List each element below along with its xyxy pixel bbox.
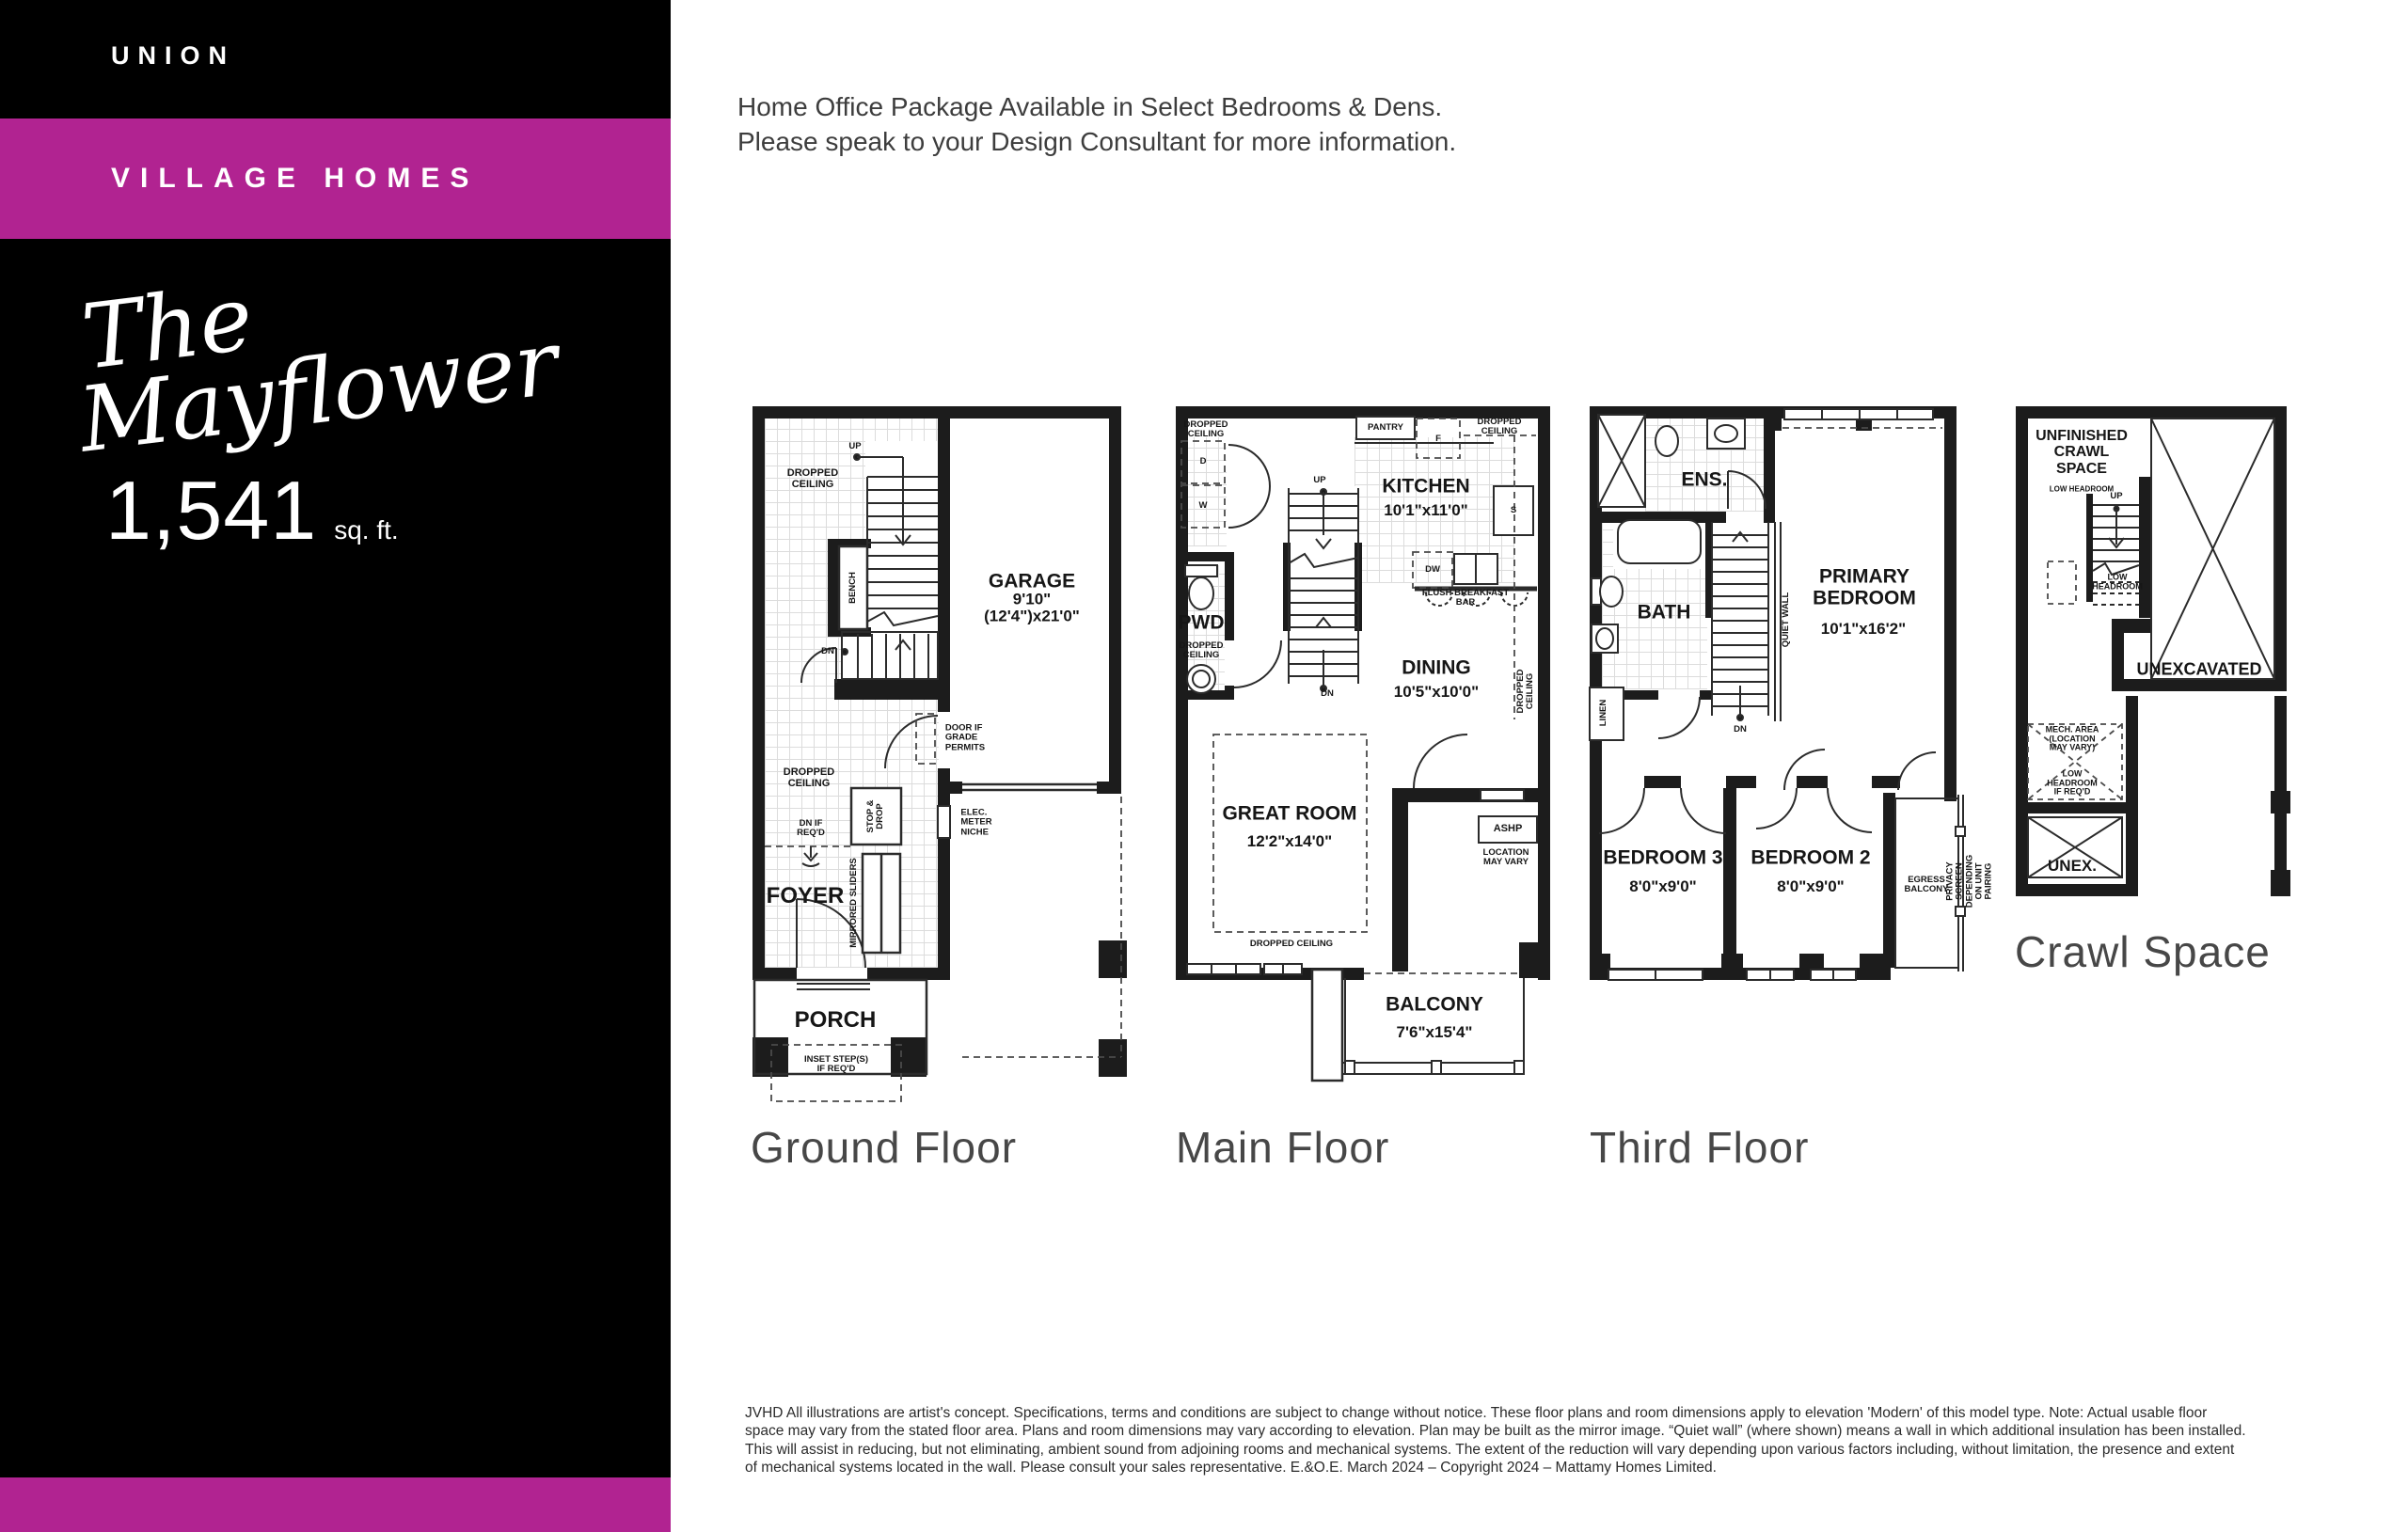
crawl-space-title: Crawl Space <box>2015 926 2271 977</box>
label-dn: DN <box>1734 725 1747 734</box>
label-bedroom2: BEDROOM 2 <box>1751 848 1870 870</box>
label-unfinished-crawl: UNFINISHED CRAWL SPACE <box>2036 428 2128 477</box>
walls <box>2016 406 2290 896</box>
label-dropped-ceiling-tl: DROPPED CEILING <box>1184 420 1228 440</box>
label-unexcavated: UNEXCAVATED <box>2136 660 2261 678</box>
label-dropped-ceiling-right: DROPPED CEILING <box>1516 670 1536 714</box>
label-primary-dim: 10'1"x16'2" <box>1821 621 1906 638</box>
label-stove: S <box>1511 506 1516 515</box>
area-unit: sq. ft. <box>334 515 398 545</box>
label-stop-drop: STOP & DROP <box>866 799 886 832</box>
label-great-room: GREAT ROOM <box>1222 804 1356 826</box>
label-dining-dim: 10'5"x10'0" <box>1394 684 1479 701</box>
label-foyer: FOYER <box>767 884 845 908</box>
shower-icon <box>1598 415 1645 507</box>
label-inset-steps: INSET STEP(S) IF REQ'D <box>804 1055 868 1075</box>
legal-disclaimer: JVHD All illustrations are artist's conc… <box>745 1404 2325 1477</box>
label-fridge: F <box>1435 434 1441 444</box>
label-up: UP <box>2110 492 2122 501</box>
label-mirrored-sliders: MIRRORED SLIDERS <box>849 858 859 948</box>
collection-band: VILLAGE HOMES <box>0 118 671 239</box>
label-elec-meter: ELEC. METER NICHE <box>960 809 991 838</box>
unexcavated-box <box>2151 419 2274 679</box>
sidebar: UNION VILLAGE HOMES The Mayflower 1,541s… <box>0 0 671 1532</box>
label-balcony-dim: 7'6"x15'4" <box>1397 1024 1473 1041</box>
label-balcony: BALCONY <box>1386 995 1483 1017</box>
label-pwd-ceiling: DROPPED CEILING <box>1180 641 1224 661</box>
label-dn: DN <box>1321 689 1334 699</box>
ground-floor-plan: UP DROPPED CEILING BENCH DN GARAGE 9'10"… <box>745 403 1140 1137</box>
label-unex: UNEX. <box>2048 858 2097 875</box>
bottom-accent-band <box>0 1477 671 1532</box>
label-low-headroom-3: LOW HEADROOM IF REQ'D <box>2047 769 2098 797</box>
label-porch: PORCH <box>795 1008 877 1033</box>
label-bench: BENCH <box>848 572 858 604</box>
main-floor-title: Main Floor <box>1176 1122 1389 1173</box>
label-dropped-ceiling-bottom: DROPPED CEILING <box>1250 940 1333 949</box>
label-washer: W <box>1199 501 1208 511</box>
label-bedroom3: BEDROOM 3 <box>1603 848 1722 870</box>
main-floor-plan-drawing <box>1170 403 1565 1137</box>
home-office-notice: Home Office Package Available in Select … <box>737 89 1456 159</box>
dashed-lines <box>2028 561 2122 799</box>
label-bedroom3-dim: 8'0"x9'0" <box>1629 878 1696 895</box>
label-low-headroom-1: LOW HEADROOM <box>2050 486 2114 495</box>
crawl-space-plan-drawing <box>2012 403 2294 1010</box>
label-bath: BATH <box>1638 603 1691 624</box>
label-kitchen-dim: 10'1"x11'0" <box>1384 502 1467 519</box>
label-low-headroom-2: LOW HEADROOM <box>2092 573 2143 591</box>
area-stat: 1,541sq. ft. <box>105 463 399 559</box>
label-dn-if-reqd: DN IF REQ'D <box>797 819 825 839</box>
label-egress-balcony: EGRESS BALCONY <box>1905 876 1949 895</box>
label-ashp-note: LOCATION MAY VARY <box>1483 848 1529 868</box>
label-up: UP <box>848 442 861 451</box>
label-dining: DINING <box>1402 658 1471 680</box>
garage-door-icon <box>962 784 1097 790</box>
label-primary-bedroom: PRIMARY BEDROOM <box>1813 566 1916 608</box>
label-dropped-ceiling: DROPPED CEILING <box>787 468 838 491</box>
label-garage-dim: 9'10"(12'4")x21'0" <box>978 592 1086 626</box>
model-name: The Mayflower <box>65 243 552 463</box>
label-ashp: ASHP <box>1494 824 1523 835</box>
label-dishwasher: DW <box>1425 565 1440 575</box>
label-up: UP <box>1313 476 1325 485</box>
third-floor-plan-drawing <box>1585 403 1980 1137</box>
label-privacy-screen: PRIVACY SCREEN DEPENDING ON UNIT PAIRING <box>1945 855 1993 908</box>
label-pwd: PWD <box>1179 613 1225 635</box>
area-value: 1,541 <box>105 464 317 557</box>
label-kitchen: KITCHEN <box>1382 477 1469 498</box>
dn-if-reqd-arrow-icon <box>802 846 819 866</box>
label-door-if-grade: DOOR IF GRADE PERMITS <box>945 724 985 753</box>
crawl-space-plan: UNFINISHED CRAWL SPACE LOW HEADROOM UP L… <box>2012 403 2294 1010</box>
label-great-room-dim: 12'2"x14'0" <box>1247 833 1332 850</box>
third-floor-plan: ENS. BATH QUIET WALL PRIMARY BEDROOM 10'… <box>1585 403 1980 1137</box>
main-floor-plan: DROPPED CEILING D W PANTRY F DROPPED CEI… <box>1170 403 1565 1137</box>
label-ens: ENS. <box>1681 470 1727 492</box>
label-linen: LINEN <box>1599 700 1608 727</box>
label-dropped-ceiling-2: DROPPED CEILING <box>784 767 834 790</box>
label-flush-bar: FLUSH BREAKFAST BAR <box>1416 589 1515 608</box>
label-dryer: D <box>1200 457 1207 466</box>
label-dn: DN <box>821 647 834 656</box>
collection-name: VILLAGE HOMES <box>0 163 479 195</box>
label-quiet-wall: QUIET WALL <box>1782 592 1791 648</box>
label-mech-area: MECH. AREA (LOCATION MAY VARY) <box>2046 725 2099 752</box>
ground-floor-title: Ground Floor <box>751 1122 1017 1173</box>
label-bedroom2-dim: 8'0"x9'0" <box>1777 878 1844 895</box>
walls <box>752 406 1127 1077</box>
label-pantry: PANTRY <box>1368 423 1403 433</box>
brand-name: UNION <box>111 41 235 71</box>
third-floor-title: Third Floor <box>1590 1122 1809 1173</box>
label-dropped-ceiling-tr: DROPPED CEILING <box>1466 418 1532 437</box>
